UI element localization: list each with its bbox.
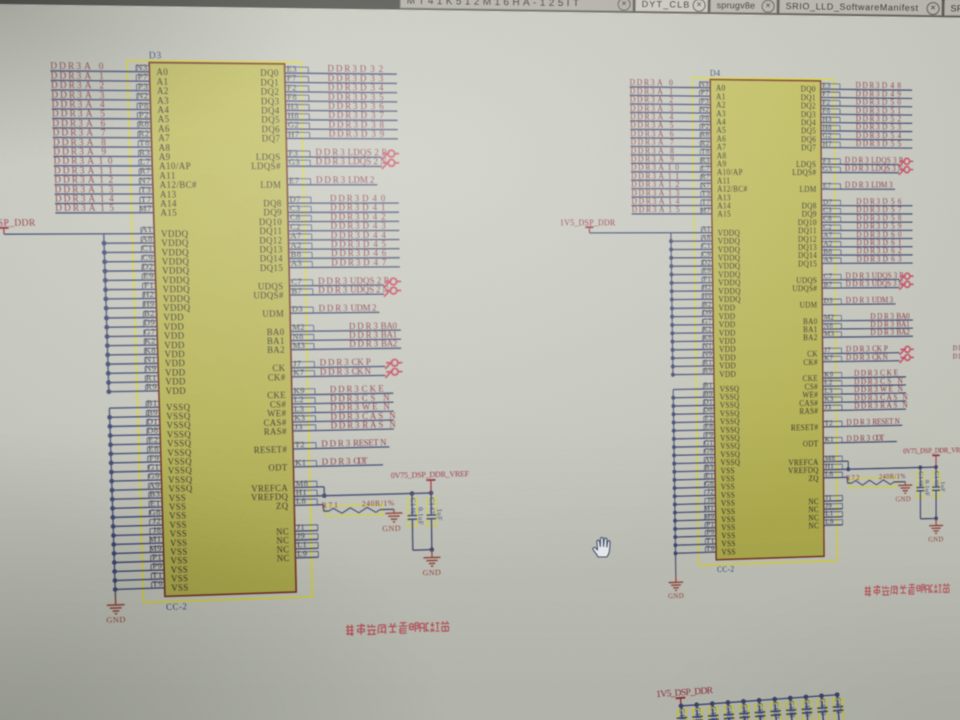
svg-text:N7: N7 [139, 175, 151, 185]
svg-text:J3: J3 [294, 422, 303, 432]
svg-text:LDM 3: LDM 3 [871, 181, 892, 190]
svg-text:DQ5: DQ5 [261, 116, 280, 126]
svg-text:DQ11: DQ11 [259, 227, 282, 237]
svg-text:A13: A13 [160, 190, 177, 200]
svg-text:B8: B8 [291, 249, 302, 259]
svg-text:A2: A2 [157, 87, 169, 97]
svg-text:C2: C2 [290, 222, 301, 232]
svg-text:UDQS#: UDQS# [792, 284, 817, 293]
svg-text:UDM 2: UDM 2 [350, 303, 376, 314]
svg-text:B7: B7 [824, 280, 833, 289]
svg-text:C148: C148 [917, 471, 923, 487]
svg-text:R3: R3 [139, 147, 150, 157]
svg-text:A15: A15 [717, 210, 731, 219]
svg-text:DQ15: DQ15 [260, 264, 283, 274]
svg-text:F8: F8 [287, 92, 297, 102]
svg-text:DDR3: DDR3 [854, 401, 878, 410]
svg-text:0V75_DSP_DDR_VREF: 0V75_DSP_DDR_VREF [391, 469, 470, 480]
svg-text:DQ8: DQ8 [263, 200, 282, 210]
svg-text:DDR3: DDR3 [315, 157, 345, 168]
svg-text:M3: M3 [293, 340, 306, 350]
svg-text:L9: L9 [825, 517, 833, 526]
svg-text:CK N: CK N [352, 366, 371, 377]
svg-text:T2: T2 [825, 419, 833, 428]
svg-text:A9: A9 [159, 153, 171, 163]
svg-text:E9: E9 [143, 271, 154, 281]
svg-text:F3: F3 [288, 148, 298, 158]
svg-text:K1: K1 [295, 458, 306, 468]
svg-text:DDR3: DDR3 [318, 303, 347, 314]
svg-text:GND: GND [896, 495, 912, 504]
svg-text:T3: T3 [140, 185, 151, 195]
svg-text:A8: A8 [158, 144, 170, 154]
svg-text:H9: H9 [143, 299, 155, 309]
svg-text:DDR3: DDR3 [846, 353, 870, 362]
svg-text:C9: C9 [142, 252, 153, 262]
svg-text:F1: F1 [144, 280, 154, 290]
svg-text:E7: E7 [823, 181, 832, 190]
svg-text:A14: A14 [160, 200, 177, 210]
svg-text:DDR3: DDR3 [320, 367, 349, 378]
svg-text:LDQS#: LDQS# [251, 163, 281, 173]
svg-text:240R/1%: 240R/1% [362, 499, 394, 508]
svg-text:GND: GND [423, 568, 442, 578]
svg-text:A15: A15 [659, 205, 680, 214]
svg-text:C164: C164 [724, 705, 734, 720]
svg-text:CK#: CK# [803, 358, 818, 367]
svg-text:R71: R71 [322, 501, 338, 510]
svg-text:B7: B7 [291, 286, 302, 296]
svg-text:D47: D47 [363, 258, 386, 269]
svg-text:240R/1%: 240R/1% [879, 472, 906, 481]
svg-text:VDDQ: VDDQ [718, 295, 741, 304]
svg-text:VDD: VDD [719, 370, 736, 379]
svg-text:1uF: 1uF [436, 508, 444, 521]
svg-text:LDM: LDM [799, 185, 816, 194]
svg-text:A10/AP: A10/AP [159, 162, 191, 172]
svg-text:DDR3: DDR3 [318, 285, 347, 296]
svg-text:B2: B2 [144, 308, 155, 318]
svg-text:C168: C168 [787, 700, 797, 718]
svg-text:K1: K1 [825, 435, 834, 444]
svg-text:DDR3: DDR3 [55, 203, 86, 214]
svg-text:ODT: ODT [803, 439, 819, 448]
svg-text:C7: C7 [291, 277, 302, 287]
svg-text:GND: GND [928, 535, 943, 544]
svg-text:DQ6: DQ6 [261, 125, 280, 135]
svg-text:DDR3: DDR3 [331, 420, 360, 431]
svg-text:P8: P8 [138, 100, 148, 110]
svg-text:DQ7: DQ7 [801, 143, 816, 152]
svg-text:H9: H9 [702, 291, 712, 300]
svg-text:K7: K7 [824, 354, 833, 363]
svg-text:DDR3: DDR3 [846, 434, 870, 443]
svg-text:UDM 3: UDM 3 [872, 296, 893, 305]
svg-text:L8: L8 [825, 470, 833, 479]
svg-text:A5: A5 [158, 115, 170, 125]
svg-text:DDR3: DDR3 [316, 175, 346, 186]
svg-text:UDQS#: UDQS# [253, 292, 284, 302]
svg-text:C166: C166 [756, 703, 766, 720]
svg-text:ZQ: ZQ [809, 474, 819, 483]
svg-text:C171: C171 [834, 697, 844, 715]
svg-text:N2: N2 [137, 91, 149, 101]
svg-text:C163: C163 [709, 706, 719, 720]
svg-text:BA2: BA2 [267, 346, 285, 356]
svg-text:C167: C167 [771, 701, 781, 719]
svg-text:F2: F2 [287, 82, 297, 92]
svg-text:A3: A3 [823, 255, 832, 264]
svg-text:H7: H7 [288, 129, 300, 139]
svg-text:C3: C3 [290, 203, 301, 213]
svg-text:BA2: BA2 [896, 328, 909, 337]
svg-text:BA2: BA2 [381, 339, 398, 350]
svg-text:ZQ: ZQ [276, 502, 289, 512]
svg-text:ODT: ODT [268, 464, 287, 474]
svg-text:CC-2: CC-2 [717, 565, 735, 574]
svg-text:D39: D39 [361, 129, 385, 140]
svg-text:G3: G3 [823, 164, 832, 173]
svg-text:A11: A11 [159, 172, 176, 182]
svg-text:LDQS#: LDQS# [792, 168, 816, 177]
svg-text:RAS N: RAS N [362, 420, 396, 431]
svg-text:GND: GND [668, 591, 684, 600]
svg-text:H3: H3 [287, 101, 299, 111]
svg-text:BA2: BA2 [803, 333, 818, 342]
svg-text:C149: C149 [933, 471, 939, 487]
svg-text:R72: R72 [846, 473, 860, 482]
svg-text:D63: D63 [883, 255, 902, 264]
svg-text:D2: D2 [142, 262, 154, 272]
svg-text:G3: G3 [289, 157, 301, 167]
svg-text:VDD: VDD [165, 387, 186, 397]
svg-text:R9: R9 [146, 382, 157, 392]
svg-text:LDM: LDM [260, 181, 281, 191]
svg-text:DQ7: DQ7 [262, 135, 281, 145]
svg-text:RAS N: RAS N [880, 401, 907, 410]
svg-text:NC: NC [277, 555, 290, 565]
svg-text:DQ12: DQ12 [259, 237, 282, 247]
svg-text:A2: A2 [290, 240, 301, 250]
svg-text:A15: A15 [160, 209, 177, 219]
svg-text:K3: K3 [294, 413, 305, 423]
svg-text:GND: GND [106, 615, 126, 625]
svg-text:D7: D7 [289, 194, 301, 204]
svg-text:DQ4: DQ4 [261, 107, 280, 117]
svg-text:UDM: UDM [262, 310, 284, 320]
svg-text:E3: E3 [286, 64, 297, 74]
svg-text:D3: D3 [292, 304, 303, 314]
svg-text:DDR3: DDR3 [845, 164, 869, 173]
svg-text:RAS#: RAS# [264, 428, 287, 438]
svg-text:G2: G2 [288, 120, 300, 130]
svg-text:RESET N: RESET N [353, 438, 387, 449]
svg-text:C146: C146 [409, 498, 417, 515]
svg-text:RESET#: RESET# [254, 446, 288, 456]
svg-text:DDR3: DDR3 [349, 339, 378, 350]
svg-text:H2: H2 [143, 289, 155, 299]
svg-text:DQ10: DQ10 [259, 218, 282, 228]
svg-text:P7: P7 [138, 72, 148, 82]
svg-text:P2: P2 [139, 110, 149, 120]
svg-text:RESET N: RESET N [872, 417, 899, 426]
svg-text:L7: L7 [140, 157, 151, 167]
svg-text:K7: K7 [293, 368, 304, 378]
svg-text:H7: H7 [823, 139, 832, 148]
svg-text:DDR3: DDR3 [846, 296, 870, 305]
svg-text:CK N: CK N [872, 353, 888, 362]
svg-text:DDR3: DDR3 [632, 205, 657, 214]
svg-text:GND: GND [382, 523, 401, 533]
svg-text:C170: C170 [818, 698, 828, 716]
svg-text:A3: A3 [157, 97, 169, 107]
svg-text:DDR3: DDR3 [322, 456, 351, 467]
svg-text:LDM 2: LDM 2 [348, 175, 375, 186]
svg-text:DDR3: DDR3 [321, 439, 350, 450]
svg-text:A8: A8 [141, 234, 153, 244]
svg-text:RESET#: RESET# [791, 423, 818, 432]
svg-text:R8: R8 [138, 119, 149, 129]
svg-text:0V75_DSP_DDR_VREF: 0V75_DSP_DDR_VREF [903, 445, 960, 455]
svg-text:T8: T8 [139, 138, 150, 148]
svg-text:VDDQ: VDDQ [161, 230, 189, 240]
svg-text:A7: A7 [158, 134, 170, 144]
svg-text:CK#: CK# [268, 374, 286, 384]
svg-text:A3: A3 [291, 258, 302, 268]
svg-text:M3: M3 [824, 329, 834, 338]
svg-text:C1: C1 [142, 243, 153, 253]
svg-text:F7: F7 [287, 73, 297, 83]
svg-text:VSS: VSS [722, 548, 736, 557]
svg-text:1uF: 1uF [939, 481, 945, 492]
svg-text:A0: A0 [156, 68, 168, 78]
svg-text:J3: J3 [824, 402, 831, 411]
svg-text:LDQS 2 N: LDQS 2 N [348, 157, 387, 168]
svg-text:D55: D55 [882, 139, 901, 148]
svg-text:R2: R2 [138, 128, 149, 138]
svg-text:DDR3: DDR3 [870, 328, 894, 337]
svg-text:R7: R7 [139, 166, 150, 176]
svg-text:L8: L8 [296, 496, 306, 506]
svg-text:DDR3: DDR3 [845, 181, 869, 190]
svg-text:C162: C162 [693, 707, 703, 720]
svg-text:VSS: VSS [171, 584, 189, 594]
svg-text:C8: C8 [290, 212, 301, 222]
svg-text:DQ15: DQ15 [798, 259, 817, 268]
svg-text:UDM: UDM [800, 301, 818, 310]
svg-text:DDR3: DDR3 [856, 255, 880, 264]
svg-text:D3: D3 [824, 296, 833, 305]
svg-text:CC-2: CC-2 [166, 603, 188, 613]
svg-text:RAS#: RAS# [799, 407, 818, 416]
svg-text:0.1uF: 0.1uF [417, 507, 425, 526]
svg-text:UDQS 3 N: UDQS 3 N [872, 279, 904, 288]
svg-text:H8: H8 [287, 111, 299, 121]
svg-text:A7: A7 [290, 231, 302, 241]
svg-text:T9: T9 [706, 544, 715, 553]
svg-text:A1: A1 [157, 78, 169, 88]
svg-text:T2: T2 [295, 440, 305, 450]
svg-text:E7: E7 [289, 176, 300, 186]
svg-text:VDDQ: VDDQ [163, 304, 191, 314]
svg-text:A4: A4 [157, 106, 169, 116]
svg-text:DDR3: DDR3 [856, 139, 880, 148]
svg-text:DQ9: DQ9 [263, 209, 282, 219]
svg-text:A1: A1 [141, 224, 153, 234]
svg-text:NC: NC [809, 522, 820, 531]
svg-text:C161: C161 [677, 708, 687, 720]
svg-text:DD: DD [953, 352, 960, 361]
svg-text:T7: T7 [141, 194, 152, 204]
svg-text:ODT: ODT [872, 434, 884, 443]
svg-text:A6: A6 [158, 125, 170, 135]
svg-text:DDR3: DDR3 [846, 279, 870, 288]
svg-text:LDQS: LDQS [256, 153, 281, 163]
svg-text:DDR3: DDR3 [329, 129, 359, 140]
svg-text:LDQS 3 N: LDQS 3 N [871, 164, 903, 173]
svg-text:A15: A15 [89, 203, 115, 214]
svg-text:A12/BC#: A12/BC# [160, 181, 198, 191]
svg-text:L9: L9 [297, 549, 307, 559]
svg-text:C147: C147 [428, 497, 436, 514]
svg-text:UDQS 2 N: UDQS 2 N [350, 285, 389, 296]
svg-text:P3: P3 [138, 81, 148, 91]
svg-text:ODT: ODT [353, 456, 368, 467]
svg-text:C165: C165 [740, 704, 750, 720]
svg-text:1V5_DSP_DDR: 1V5_DSP_DDR [560, 217, 616, 227]
svg-text:R9: R9 [703, 366, 712, 375]
svg-text:C169: C169 [802, 699, 812, 717]
svg-text:0.1uF: 0.1uF [924, 480, 930, 496]
svg-text:D3: D3 [149, 50, 162, 61]
svg-text:N3: N3 [136, 62, 148, 72]
svg-text:DDR3: DDR3 [846, 418, 870, 427]
svg-text:T9: T9 [152, 579, 163, 589]
svg-text:DDR3: DDR3 [331, 258, 360, 269]
svg-text:D4: D4 [710, 68, 721, 78]
